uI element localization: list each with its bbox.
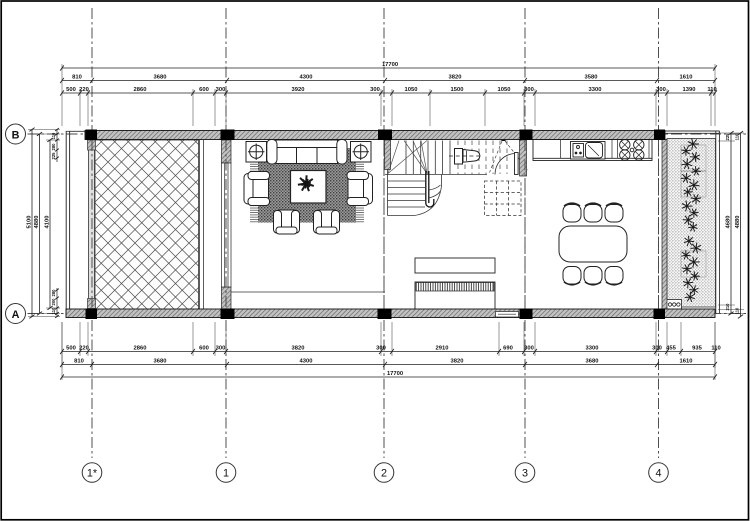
svg-text:810: 810 xyxy=(74,359,84,365)
svg-text:110: 110 xyxy=(51,132,56,139)
svg-text:3820: 3820 xyxy=(292,346,305,352)
svg-text:110: 110 xyxy=(735,307,740,314)
svg-text:220: 220 xyxy=(79,87,89,93)
svg-text:1390: 1390 xyxy=(683,87,696,93)
svg-text:300: 300 xyxy=(656,87,666,93)
svg-text:210: 210 xyxy=(725,303,730,311)
svg-text:3580: 3580 xyxy=(585,75,598,81)
svg-text:3680: 3680 xyxy=(586,359,599,365)
svg-text:225: 225 xyxy=(725,133,730,141)
svg-text:110: 110 xyxy=(51,307,56,314)
svg-text:4880: 4880 xyxy=(34,216,40,229)
svg-text:2: 2 xyxy=(381,468,387,480)
svg-text:1610: 1610 xyxy=(680,359,693,365)
svg-text:600: 600 xyxy=(199,87,209,93)
svg-text:4100: 4100 xyxy=(44,216,50,229)
svg-text:300: 300 xyxy=(524,87,534,93)
svg-text:B: B xyxy=(12,129,20,141)
svg-text:110: 110 xyxy=(735,133,740,140)
svg-text:3300: 3300 xyxy=(586,346,599,352)
svg-text:3300: 3300 xyxy=(589,87,602,93)
svg-text:1500: 1500 xyxy=(451,87,464,93)
svg-text:600: 600 xyxy=(199,346,209,352)
svg-text:2860: 2860 xyxy=(134,346,147,352)
svg-text:280: 280 xyxy=(51,143,56,151)
svg-text:1: 1 xyxy=(223,468,229,480)
svg-text:3820: 3820 xyxy=(449,75,462,81)
svg-text:3820: 3820 xyxy=(451,359,464,365)
svg-text:3920: 3920 xyxy=(292,87,305,93)
svg-text:810: 810 xyxy=(72,75,82,81)
svg-text:17700: 17700 xyxy=(382,62,398,68)
svg-text:935: 935 xyxy=(692,346,702,352)
svg-text:110: 110 xyxy=(707,87,716,93)
svg-text:3680: 3680 xyxy=(154,359,167,365)
svg-text:1610: 1610 xyxy=(680,75,693,81)
svg-text:280: 280 xyxy=(51,289,56,297)
svg-text:1*: 1* xyxy=(87,468,98,480)
svg-text:4880: 4880 xyxy=(735,216,741,229)
svg-text:225: 225 xyxy=(51,152,56,160)
svg-text:4680: 4680 xyxy=(725,216,731,229)
svg-text:220: 220 xyxy=(79,346,89,352)
svg-text:110: 110 xyxy=(711,346,720,352)
svg-text:1050: 1050 xyxy=(498,87,511,93)
svg-text:17700: 17700 xyxy=(387,371,403,377)
svg-text:2910: 2910 xyxy=(436,346,449,352)
svg-text:300: 300 xyxy=(370,87,380,93)
svg-text:A: A xyxy=(12,309,20,321)
svg-text:300: 300 xyxy=(524,346,534,352)
svg-text:5100: 5100 xyxy=(26,216,32,229)
svg-text:455: 455 xyxy=(666,346,676,352)
svg-text:4: 4 xyxy=(655,468,661,480)
svg-text:3680: 3680 xyxy=(154,75,167,81)
svg-text:300: 300 xyxy=(216,87,226,93)
svg-text:500: 500 xyxy=(66,87,76,93)
svg-text:4300: 4300 xyxy=(300,359,313,365)
svg-text:200: 200 xyxy=(51,298,56,306)
svg-text:3: 3 xyxy=(522,468,528,480)
svg-text:2860: 2860 xyxy=(134,87,147,93)
svg-text:300: 300 xyxy=(376,346,386,352)
svg-text:4300: 4300 xyxy=(300,75,313,81)
svg-text:300: 300 xyxy=(652,346,662,352)
svg-text:1050: 1050 xyxy=(405,87,418,93)
svg-text:500: 500 xyxy=(66,346,76,352)
svg-text:690: 690 xyxy=(503,346,513,352)
svg-text:300: 300 xyxy=(216,346,226,352)
